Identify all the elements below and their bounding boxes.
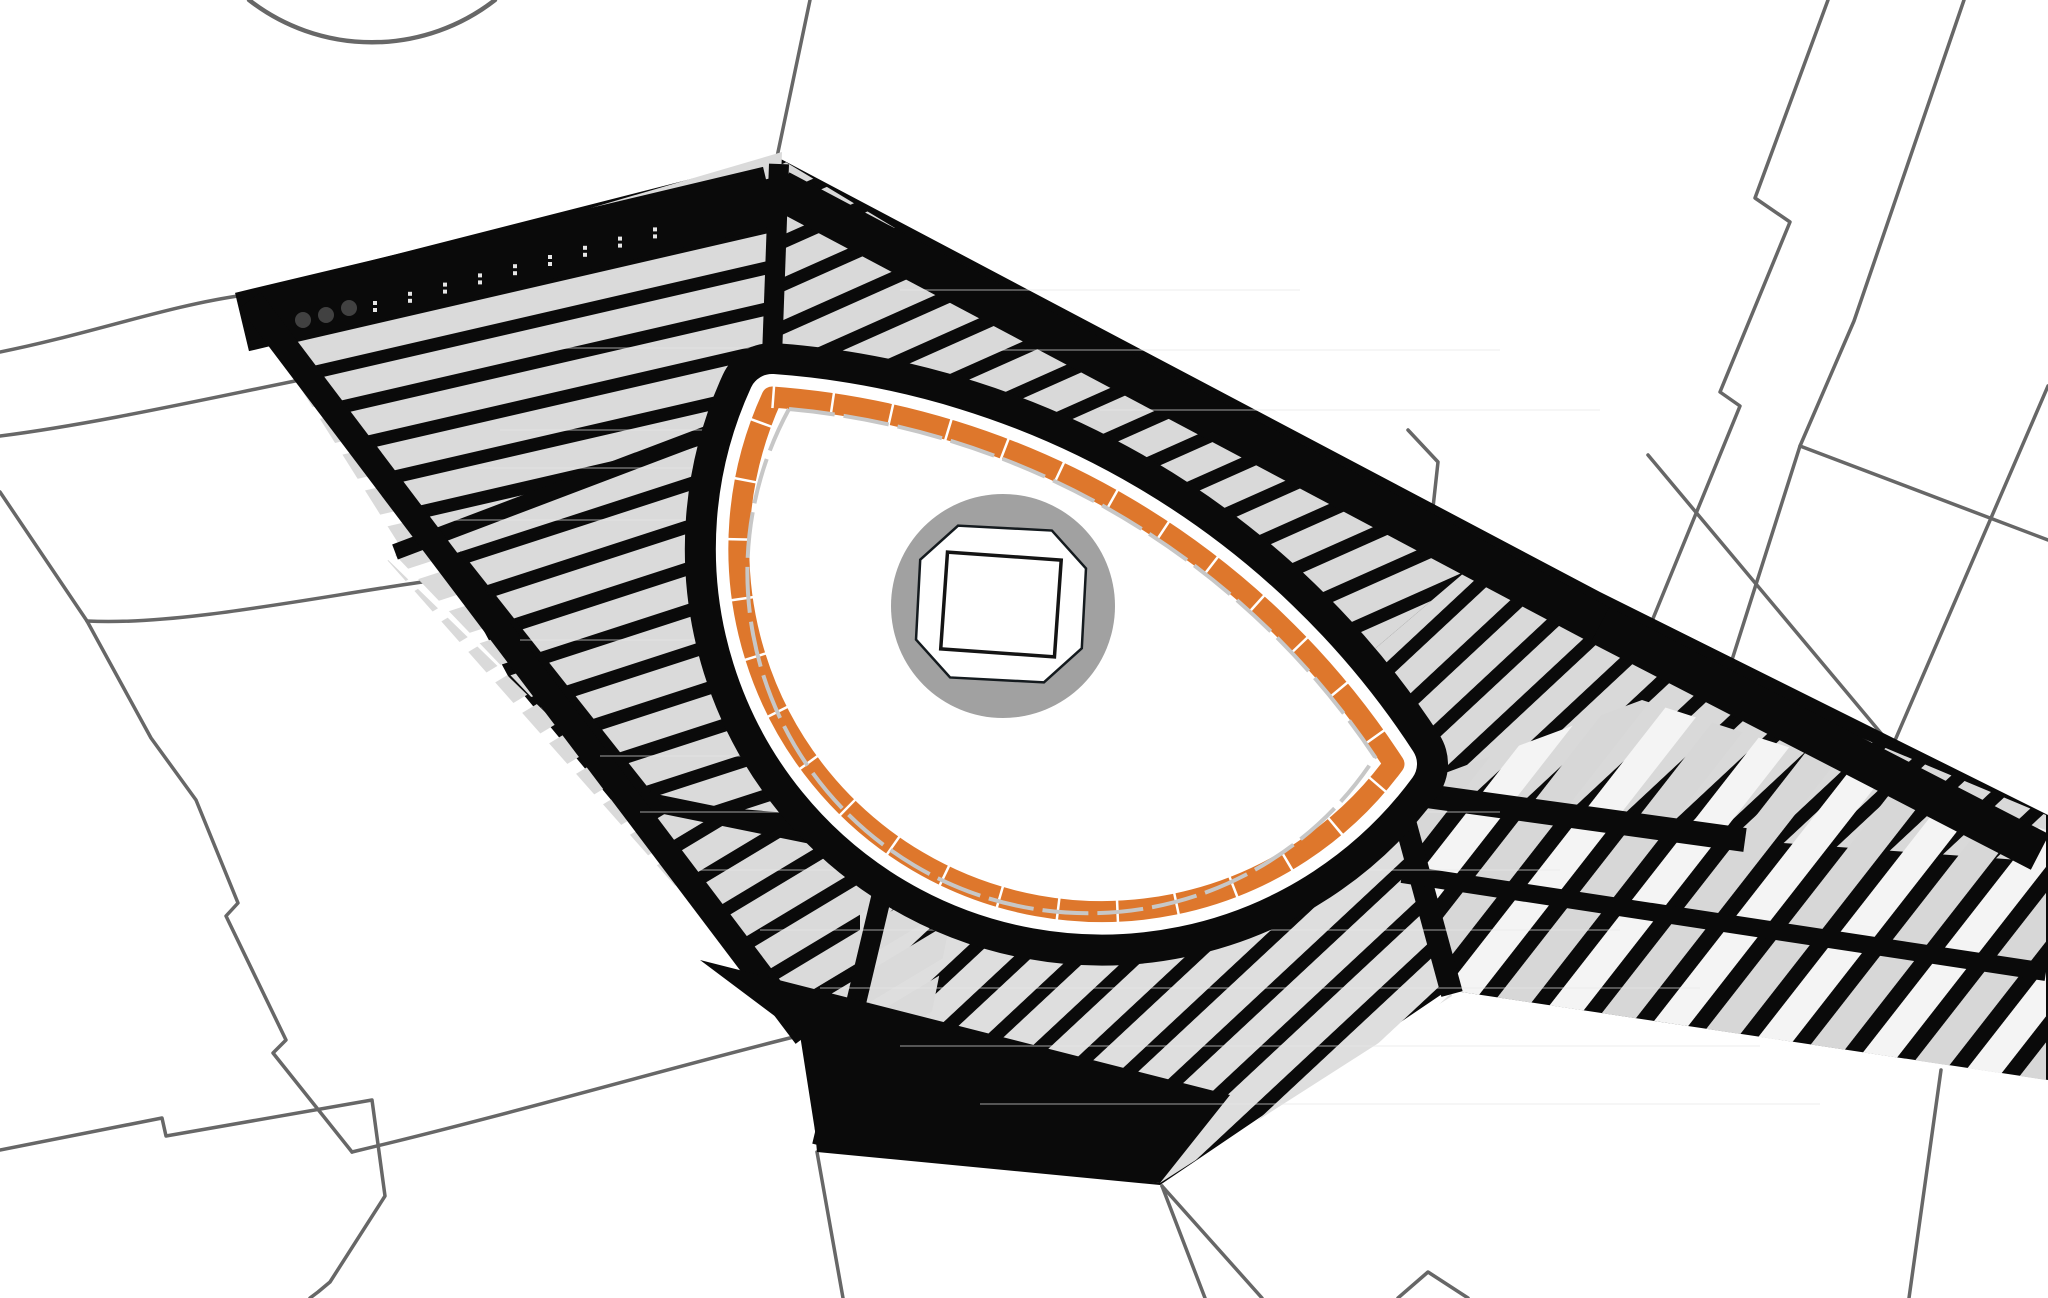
- band-tick: [583, 246, 587, 250]
- band-dot: [341, 300, 357, 316]
- central-building: [891, 494, 1115, 718]
- band-tick: [653, 227, 657, 231]
- band-tick: [653, 234, 657, 238]
- map-canvas: [0, 0, 2048, 1298]
- band-tick: [513, 264, 517, 268]
- band-tick: [618, 244, 622, 248]
- band-tick: [583, 253, 587, 257]
- building-core: [941, 552, 1061, 657]
- site-plan-svg: [0, 0, 2048, 1298]
- band-dot: [318, 307, 334, 323]
- band-tick: [478, 273, 482, 277]
- band-tick: [548, 262, 552, 266]
- band-tick: [618, 237, 622, 241]
- band-tick: [373, 308, 377, 312]
- band-tick: [373, 301, 377, 305]
- band-tick: [443, 290, 447, 294]
- band-tick: [478, 280, 482, 284]
- band-tick: [443, 283, 447, 287]
- band-tick: [513, 271, 517, 275]
- band-tick: [408, 299, 412, 303]
- band-tick: [548, 255, 552, 259]
- band-dot: [295, 312, 311, 328]
- band-tick: [408, 292, 412, 296]
